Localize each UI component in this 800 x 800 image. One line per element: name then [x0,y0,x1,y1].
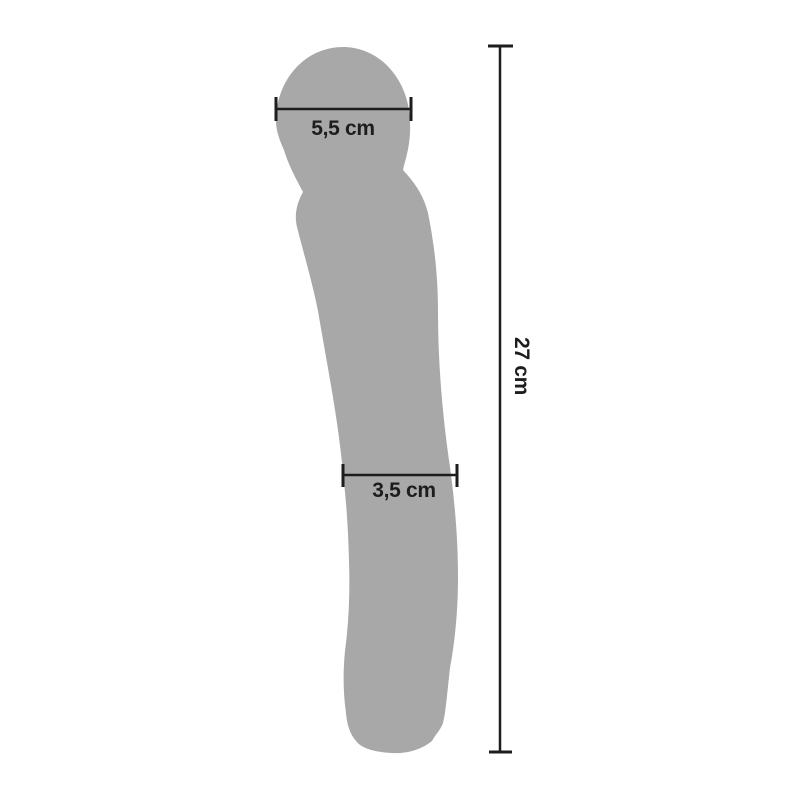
shaft-width-label: 3,5 cm [372,479,436,502]
dimension-diagram: 5,5 cm 3,5 cm 27 cm [0,0,800,800]
product-silhouette [276,47,458,753]
total-length-dimension: 27 cm [488,46,533,752]
total-length-label: 27 cm [510,337,533,395]
head-width-label: 5,5 cm [311,117,375,140]
diagram-canvas: 5,5 cm 3,5 cm 27 cm [0,0,800,800]
